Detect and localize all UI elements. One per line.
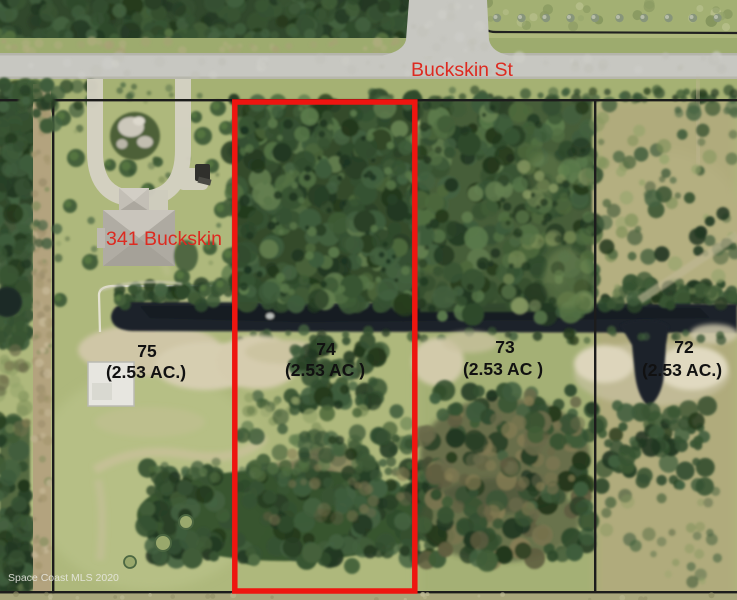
svg-text:Buckskin St: Buckskin St: [411, 59, 513, 81]
svg-text:(2.53 AC.): (2.53 AC.): [106, 362, 186, 382]
svg-text:Space Coast MLS 2020: Space Coast MLS 2020: [8, 572, 119, 584]
svg-text:72: 72: [674, 337, 694, 357]
svg-text:341 Buckskin: 341 Buckskin: [106, 228, 222, 250]
svg-text:75: 75: [137, 341, 157, 361]
svg-text:74: 74: [316, 339, 336, 359]
svg-text:(2.53 AC ): (2.53 AC ): [463, 359, 543, 379]
svg-text:(2.53 AC.): (2.53 AC.): [642, 360, 722, 380]
svg-text:73: 73: [495, 337, 515, 357]
svg-text:(2.53 AC ): (2.53 AC ): [285, 360, 365, 380]
